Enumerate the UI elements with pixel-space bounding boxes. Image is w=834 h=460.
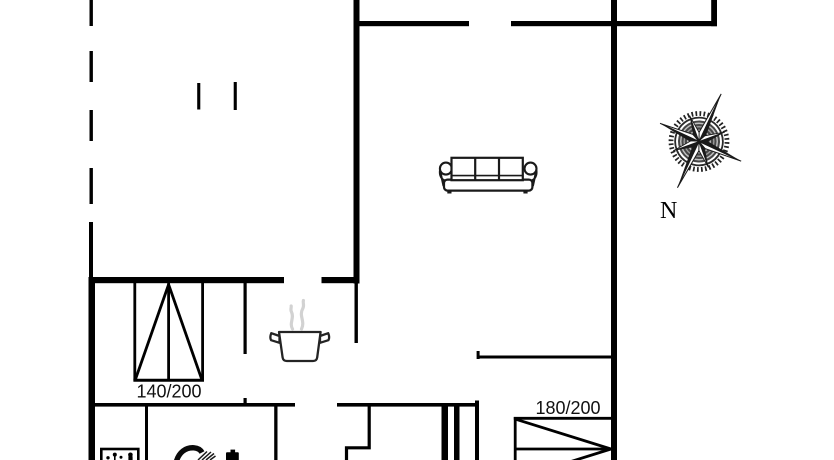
svg-text:180/200: 180/200 bbox=[535, 398, 600, 418]
svg-text:N: N bbox=[660, 198, 677, 224]
svg-text:140/200: 140/200 bbox=[136, 381, 201, 401]
